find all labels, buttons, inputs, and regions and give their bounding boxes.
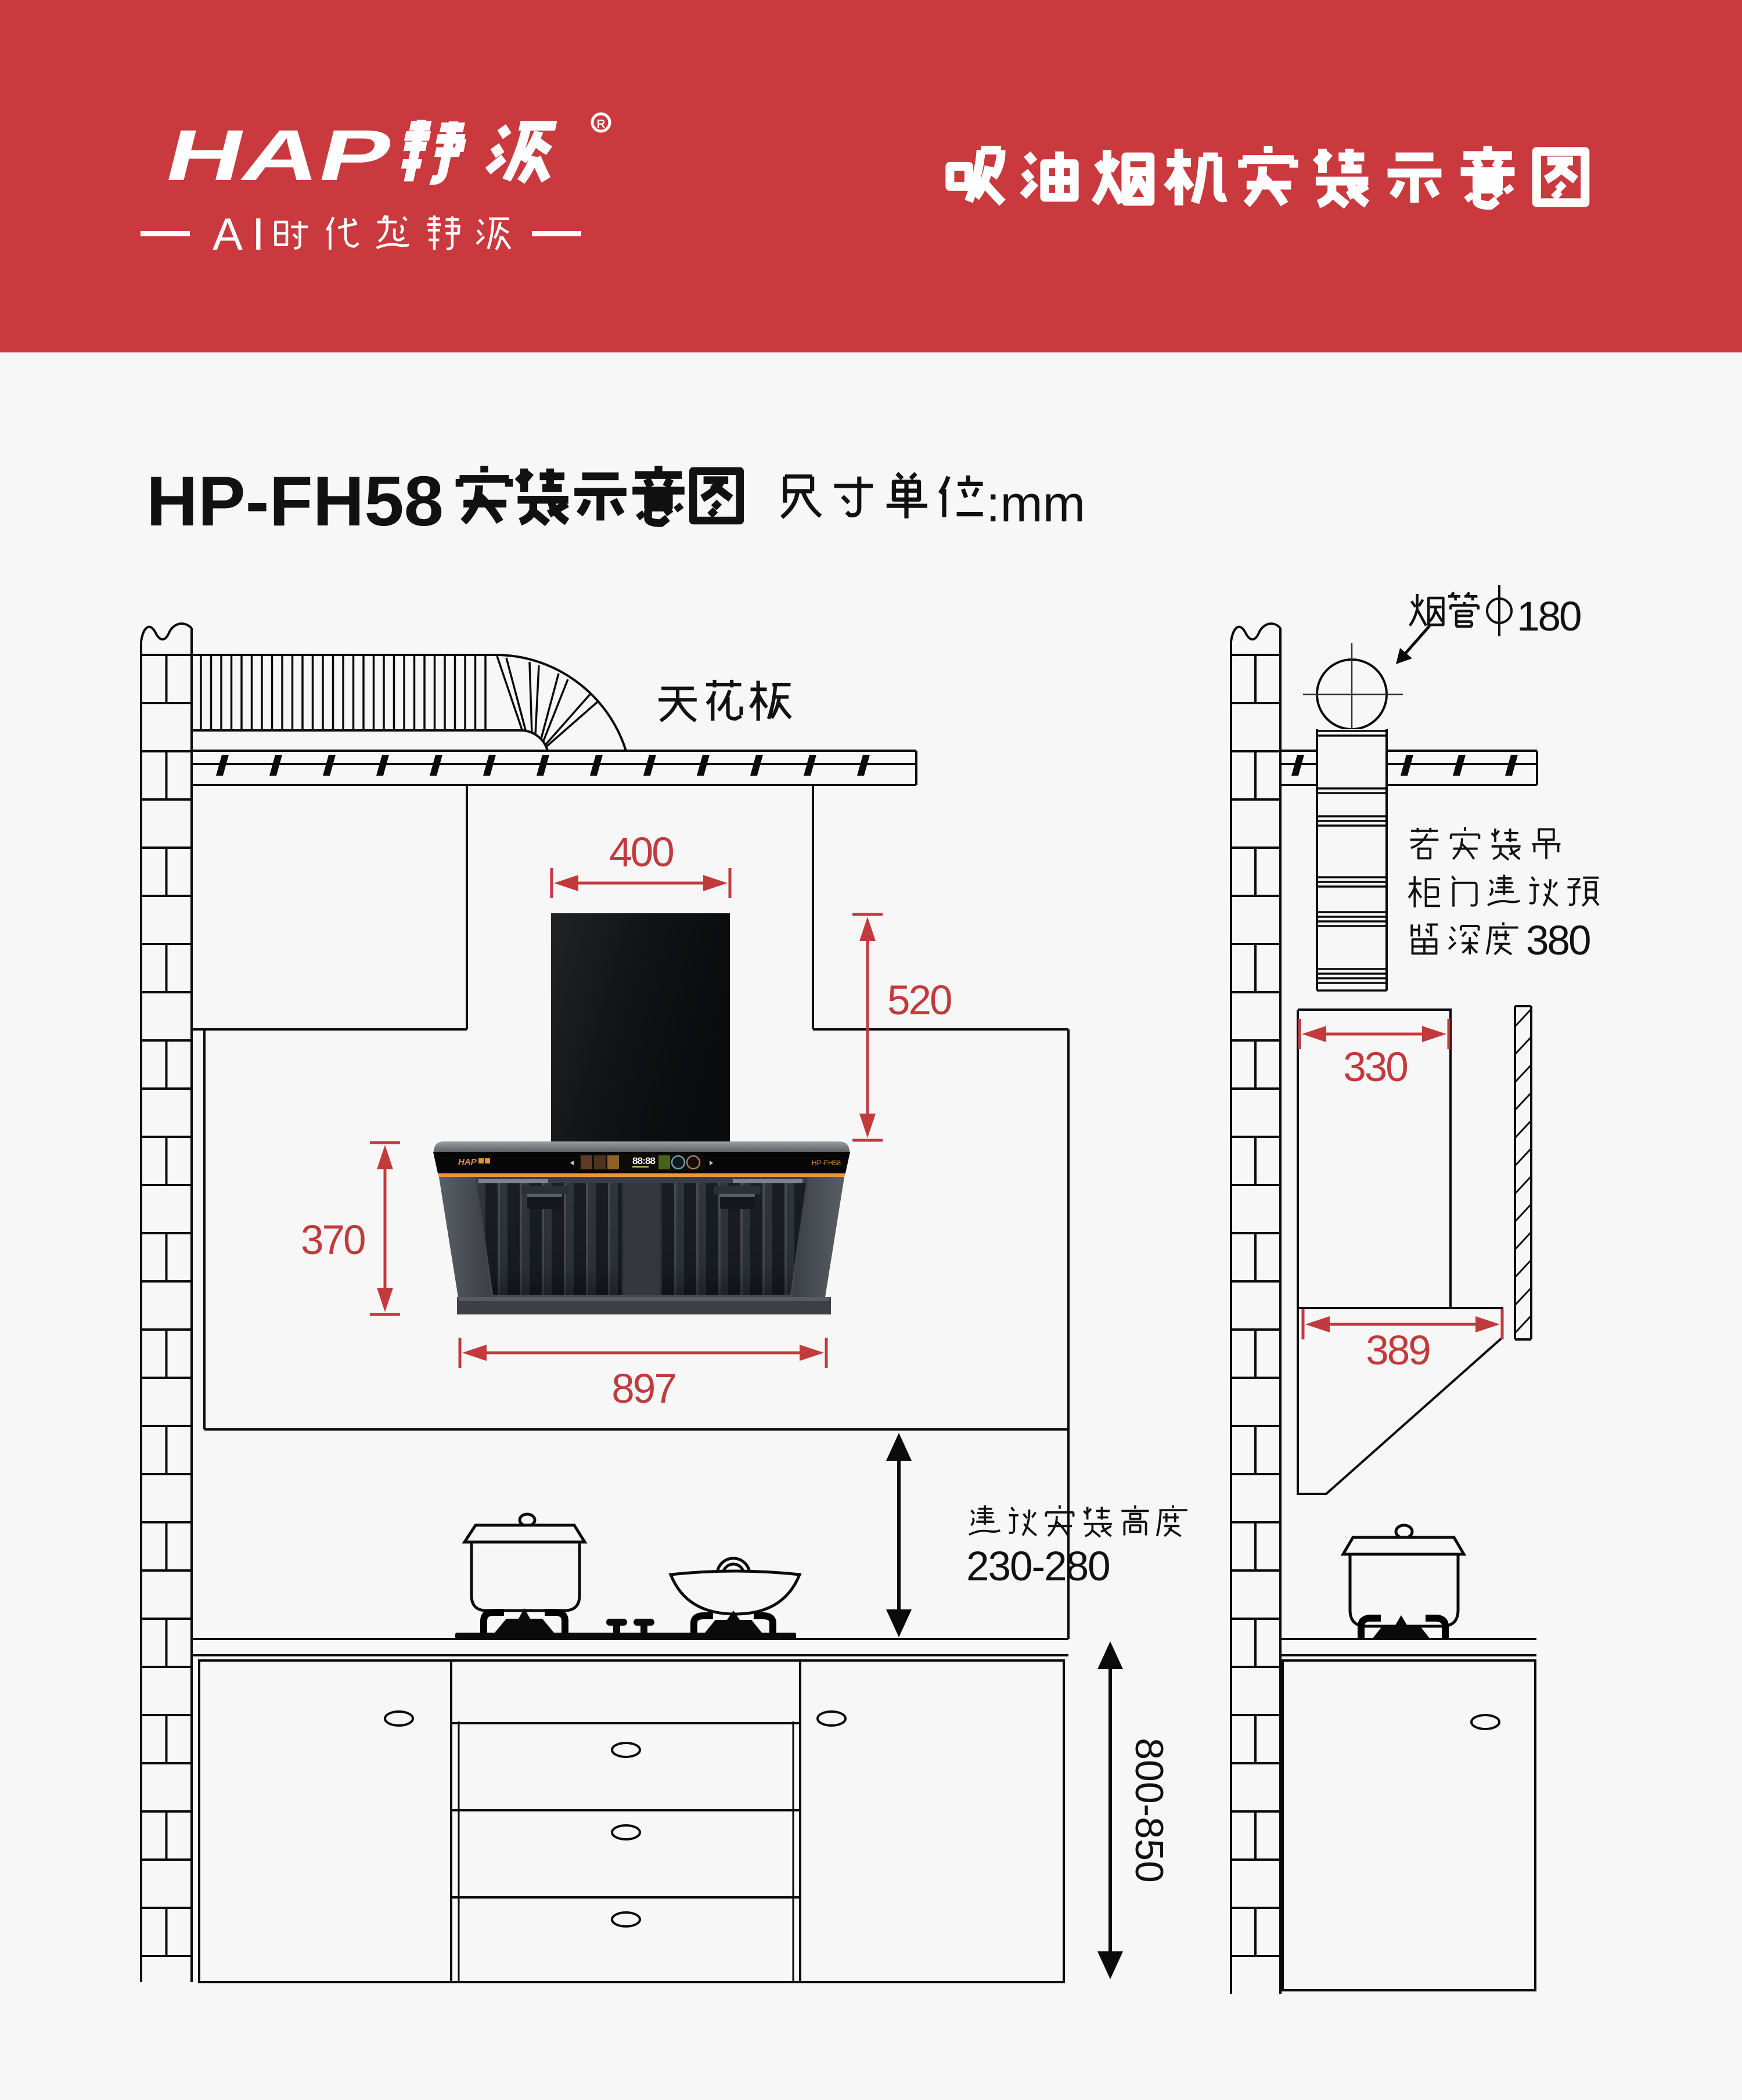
svg-text:HP-FH58: HP-FH58 [812,1159,841,1167]
svg-text:HAP: HAP [458,1157,477,1167]
svg-text:389: 389 [1366,1328,1430,1374]
svg-text:88:88: 88:88 [632,1155,656,1166]
svg-text:HAP: HAP [157,115,401,196]
svg-text:520: 520 [887,978,951,1024]
svg-text:380: 380 [1526,918,1590,964]
svg-text:370: 370 [301,1218,365,1263]
svg-text:897: 897 [611,1366,675,1412]
svg-text:230-280: 230-280 [966,1544,1110,1590]
svg-text:HP-FH58: HP-FH58 [146,462,444,541]
svg-text:330: 330 [1343,1044,1407,1090]
svg-text:400: 400 [609,830,673,876]
svg-text:R: R [597,118,606,131]
svg-text:800-850: 800-850 [1127,1738,1171,1883]
svg-text::mm: :mm [986,475,1085,532]
svg-text:180: 180 [1517,594,1581,640]
svg-text:AI: AI [213,208,274,260]
